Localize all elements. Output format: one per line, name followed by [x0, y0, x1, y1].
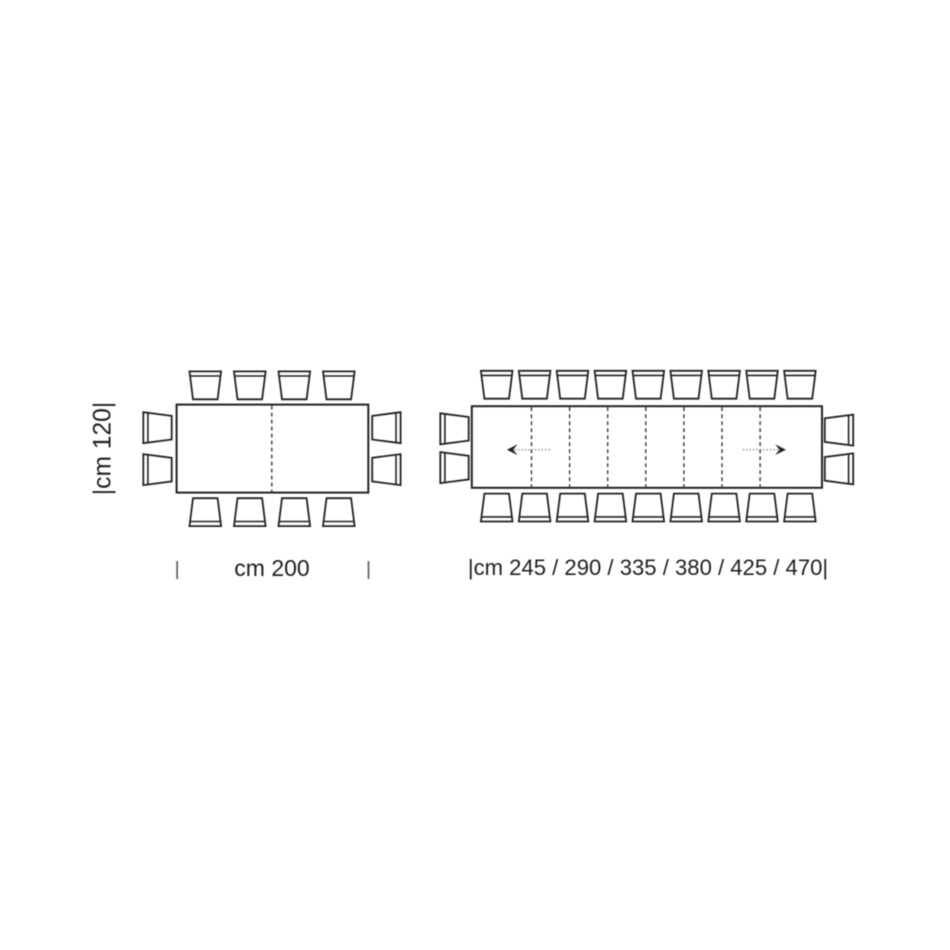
- svg-text:|cm 245 / 290 / 335 / 380 / 42: |cm 245 / 290 / 335 / 380 / 425 / 470|: [468, 555, 828, 580]
- svg-text:|cm 120|: |cm 120|: [89, 402, 116, 495]
- svg-text:cm 200: cm 200: [234, 555, 309, 581]
